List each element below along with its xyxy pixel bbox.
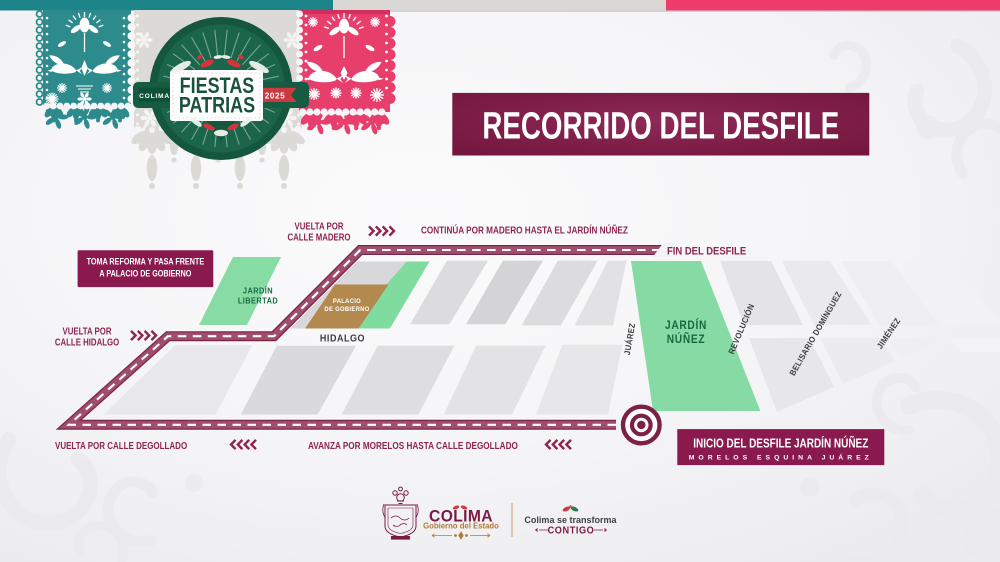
svg-text:AVANZA POR MORELOS HASTA CALLE: AVANZA POR MORELOS HASTA CALLE DEGOLLADO xyxy=(308,440,518,451)
svg-text:CALLE HIDALGO: CALLE HIDALGO xyxy=(55,337,119,348)
svg-text:A PALACIO DE GOBIERNO: A PALACIO DE GOBIERNO xyxy=(99,269,191,279)
svg-text:MORELOS ESQUINA JUÁREZ: MORELOS ESQUINA JUÁREZ xyxy=(689,453,873,462)
svg-text:Colima se transforma: Colima se transforma xyxy=(524,515,617,525)
svg-text:PATRIAS: PATRIAS xyxy=(179,94,255,118)
svg-text:CONTINÚA POR MADERO HASTA EL J: CONTINÚA POR MADERO HASTA EL JARDÍN NÚÑE… xyxy=(421,224,628,236)
svg-text:Gobierno del Estado: Gobierno del Estado xyxy=(423,521,499,530)
svg-text:LIBERTAD: LIBERTAD xyxy=(238,296,278,306)
svg-text:COLIMA: COLIMA xyxy=(139,93,170,100)
svg-text:INICIO DEL DESFILE JARDÍN NÚÑE: INICIO DEL DESFILE JARDÍN NÚÑEZ xyxy=(693,436,868,450)
svg-text:JARDÍN: JARDÍN xyxy=(243,286,273,296)
svg-text:PALACIO: PALACIO xyxy=(333,298,361,305)
svg-text:HIDALGO: HIDALGO xyxy=(320,333,365,345)
svg-text:VUELTA POR CALLE DEGOLLADO: VUELTA POR CALLE DEGOLLADO xyxy=(55,440,187,451)
svg-text:NÚÑEZ: NÚÑEZ xyxy=(667,332,705,346)
svg-text:VUELTA POR: VUELTA POR xyxy=(63,326,113,337)
svg-text:TOMA REFORMA Y PASA FRENTE: TOMA REFORMA Y PASA FRENTE xyxy=(87,257,205,267)
svg-text:CALLE MADERO: CALLE MADERO xyxy=(287,232,350,243)
svg-text:VUELTA POR: VUELTA POR xyxy=(295,221,345,232)
svg-text:2025: 2025 xyxy=(265,91,286,100)
svg-text:CONTIGO: CONTIGO xyxy=(548,525,595,536)
svg-text:FIN DEL DESFILE: FIN DEL DESFILE xyxy=(667,246,746,258)
svg-text:JARDÍN: JARDÍN xyxy=(665,318,707,332)
svg-text:DE GOBIERNO: DE GOBIERNO xyxy=(324,306,369,313)
svg-text:RECORRIDO DEL DESFILE: RECORRIDO DEL DESFILE xyxy=(482,105,839,147)
